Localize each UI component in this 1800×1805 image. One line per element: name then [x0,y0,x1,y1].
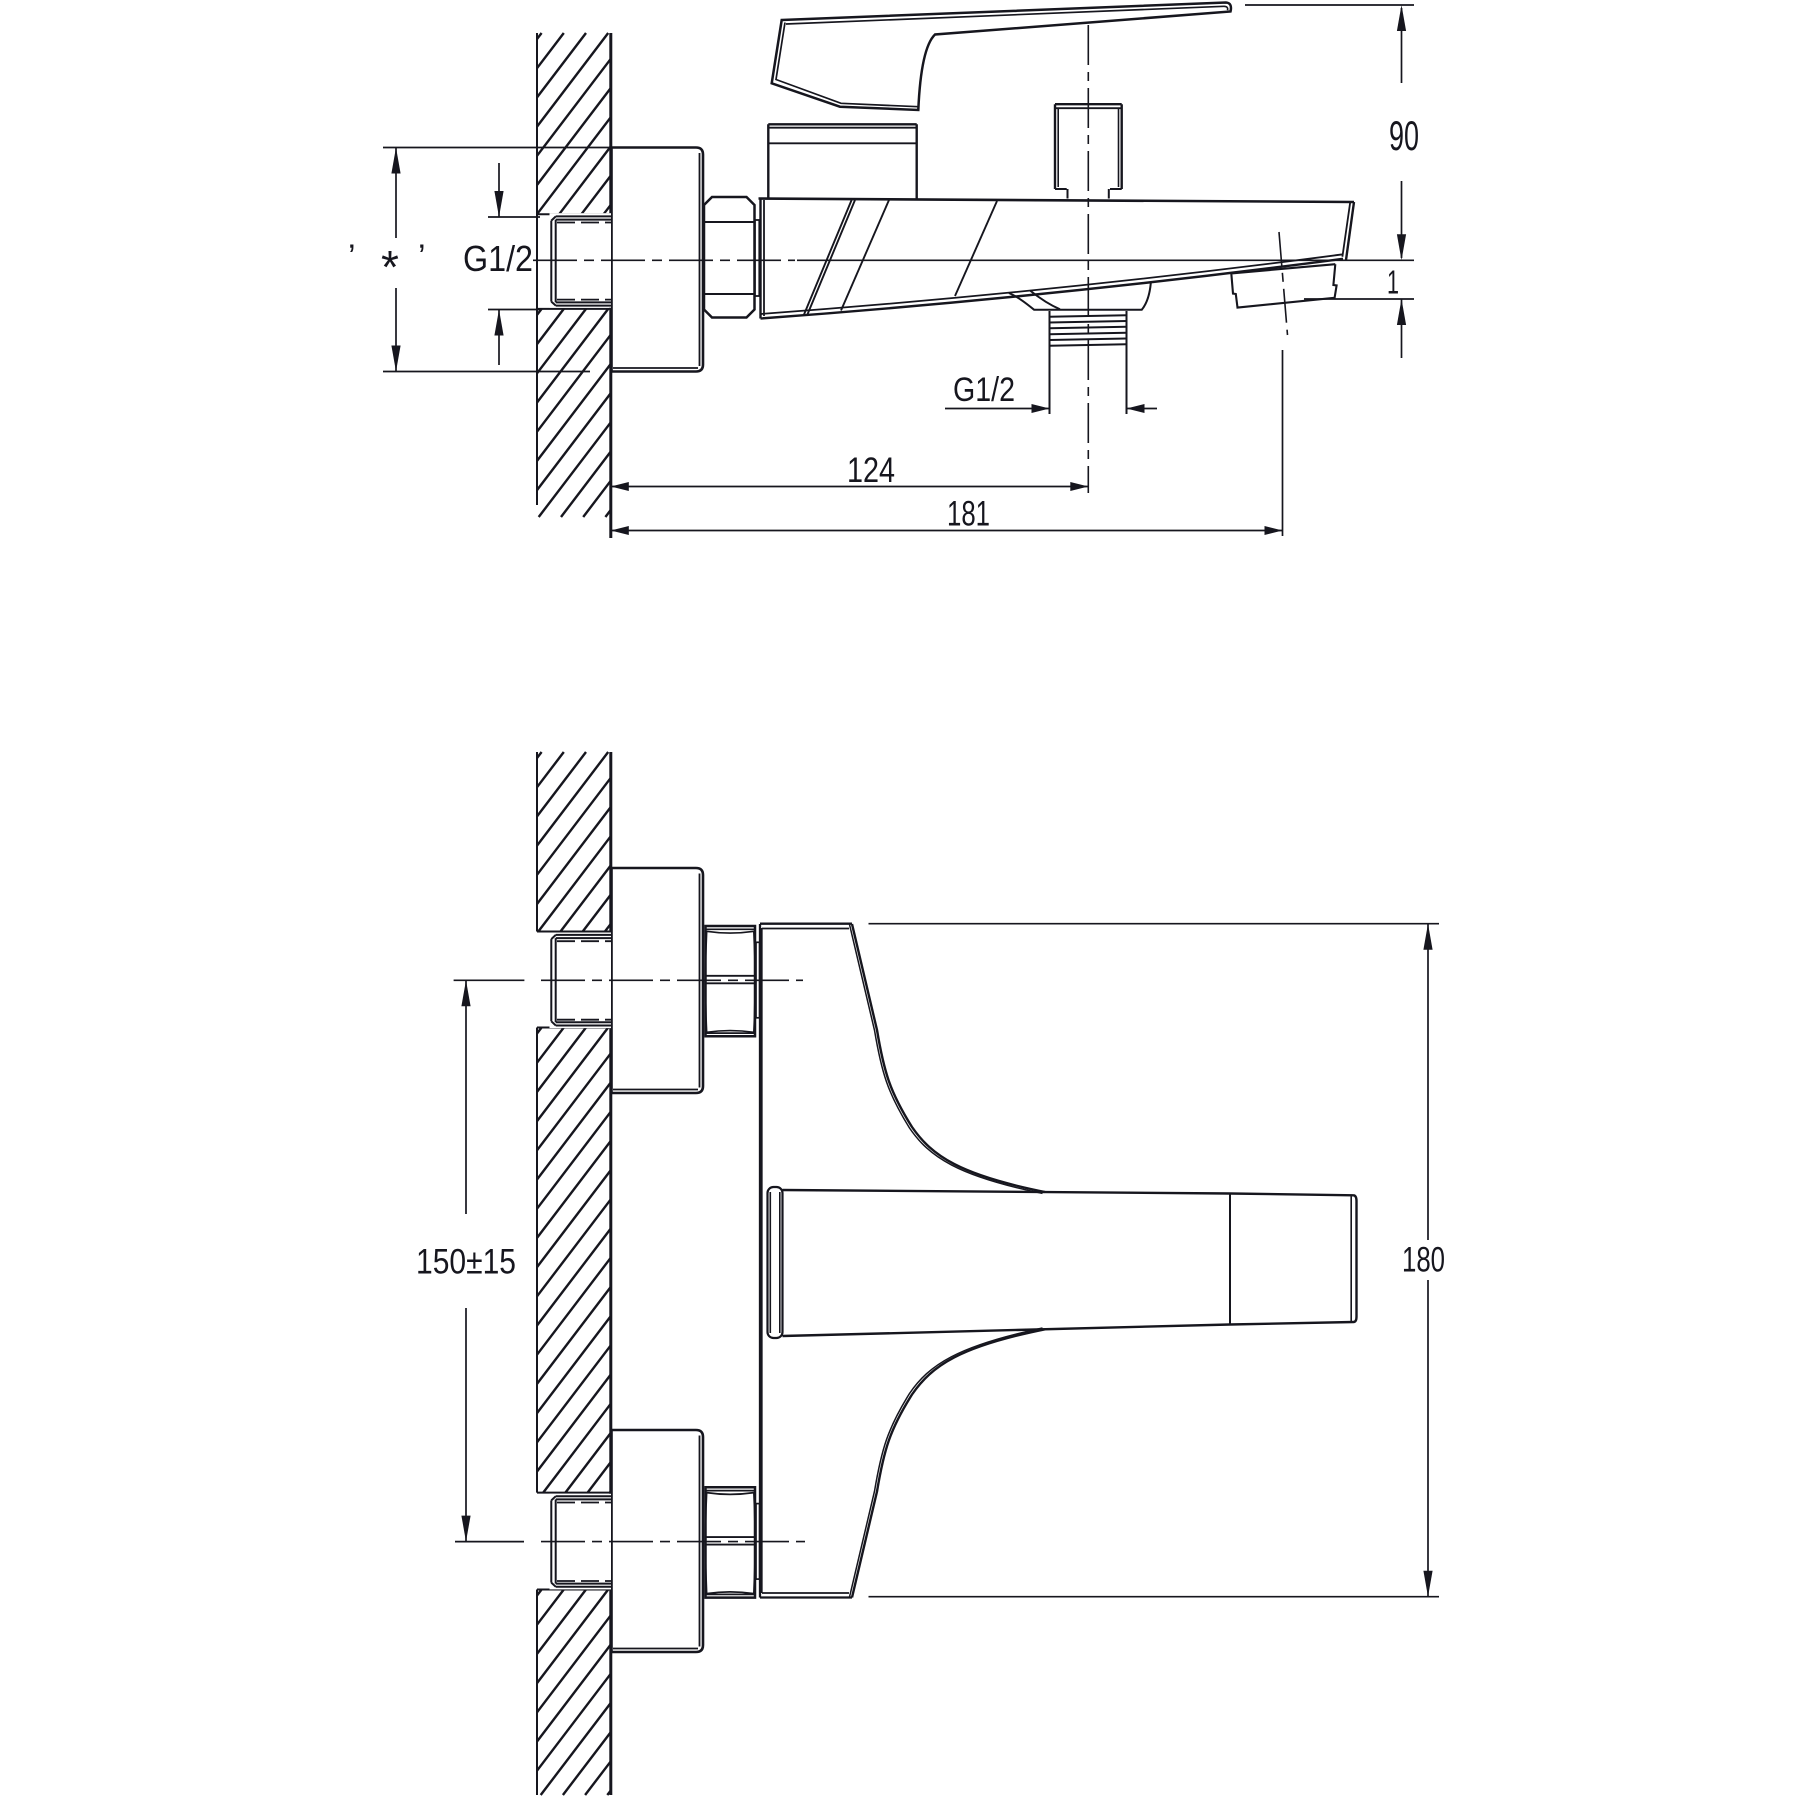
svg-text:G1/2: G1/2 [953,371,1015,409]
svg-text:*: * [381,241,399,293]
svg-text:G1/2: G1/2 [463,238,533,279]
svg-text:’: ’ [348,238,356,276]
svg-text:124: 124 [847,451,895,490]
svg-text:180: 180 [1402,1241,1445,1280]
svg-text:90: 90 [1389,112,1419,159]
svg-text:150±15: 150±15 [416,1243,516,1282]
svg-text:181: 181 [947,495,990,534]
svg-text:’: ’ [418,238,426,276]
svg-text:1: 1 [1387,264,1399,301]
